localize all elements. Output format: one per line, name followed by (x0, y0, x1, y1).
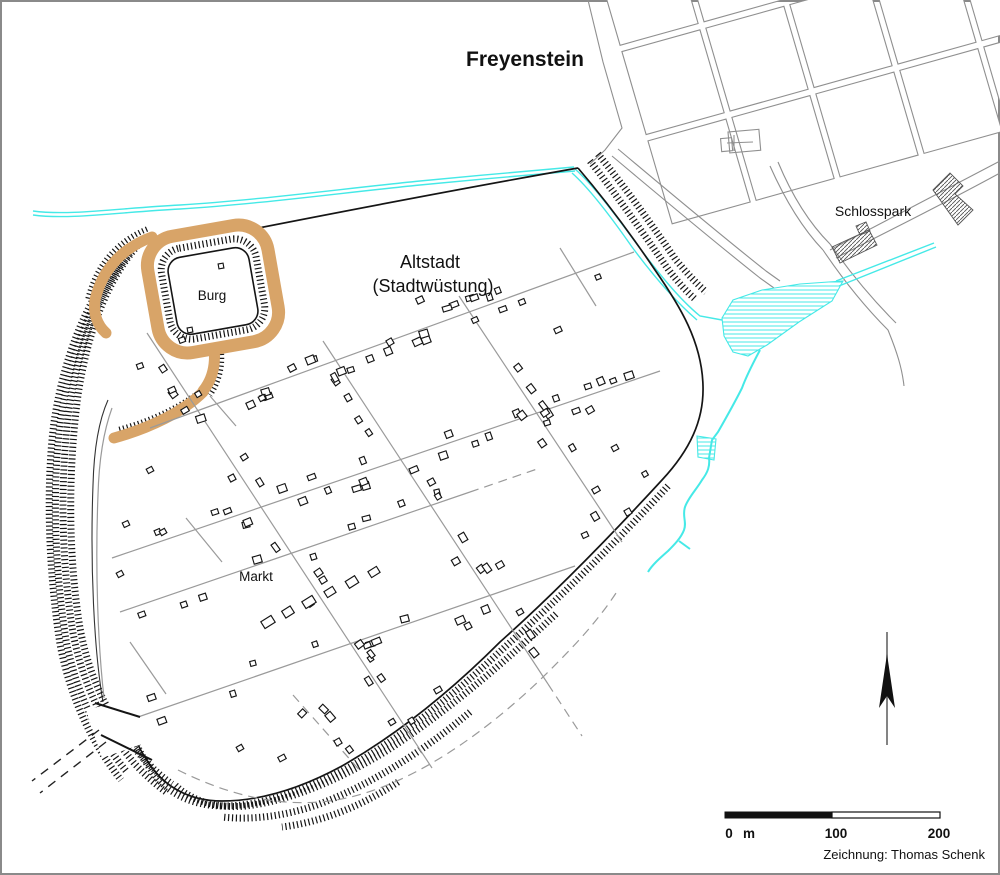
house-footprint (377, 674, 385, 683)
house-footprint (544, 420, 551, 426)
house-footprint (252, 555, 262, 564)
house-footprint (554, 326, 562, 333)
house-footprint (228, 474, 236, 482)
markt-label: Markt (239, 569, 273, 584)
streams-and-wetlands (33, 167, 936, 572)
house-footprint (310, 553, 317, 560)
house-footprint (345, 745, 353, 753)
house-footprint (371, 637, 381, 646)
scale-bar: 0 m 100 200 (725, 812, 950, 841)
street-line (459, 296, 622, 542)
house-footprint (324, 586, 336, 597)
house-footprint (592, 486, 601, 494)
house-footprint (277, 484, 288, 494)
street-line (323, 341, 548, 684)
house-footprint (146, 466, 154, 473)
house-footprint (481, 605, 490, 615)
house-footprint (288, 364, 297, 373)
burg-label: Burg (198, 288, 227, 303)
street-line (147, 333, 432, 768)
scale-label-unit: m (743, 826, 755, 841)
house-footprint (569, 444, 577, 452)
house-footprint (368, 566, 380, 577)
house-footprint (302, 595, 316, 608)
house-footprint (427, 478, 436, 486)
scale-label-100: 100 (825, 826, 848, 841)
town-block (732, 96, 834, 201)
scale-label-zero: 0 (725, 826, 733, 841)
street-line (186, 518, 222, 562)
house-footprint (298, 709, 307, 718)
house-footprint (581, 531, 589, 538)
house-footprint (261, 615, 275, 628)
house-footprint (243, 518, 253, 527)
house-footprint (494, 287, 501, 294)
courtyard-building (218, 263, 224, 269)
house-footprint (122, 520, 130, 527)
house-footprint (442, 305, 452, 312)
house-footprint (464, 622, 472, 630)
town-block (900, 49, 1000, 154)
house-footprint (472, 440, 479, 447)
house-footprint (250, 660, 257, 666)
street-line (130, 642, 166, 694)
house-footprint (400, 615, 409, 623)
house-footprint (307, 473, 316, 480)
map-title: Freyenstein (466, 48, 584, 71)
house-footprint (359, 456, 366, 464)
house-footprint (319, 576, 327, 584)
house-footprint (344, 393, 352, 401)
house-footprint (354, 640, 364, 650)
house-footprint (347, 367, 355, 374)
house-footprint (364, 676, 373, 686)
schloss-building (933, 173, 973, 225)
house-footprint (348, 523, 356, 530)
modern-town-blocks (588, 0, 1000, 386)
house-footprint (610, 377, 617, 384)
house-footprint (458, 532, 468, 543)
house-footprint (157, 716, 167, 725)
castle-earthwork (94, 237, 152, 333)
house-footprint (590, 511, 599, 521)
house-footprint (471, 316, 479, 323)
scale-label-200: 200 (928, 826, 951, 841)
house-footprint (298, 496, 308, 505)
stream (33, 167, 574, 213)
house-footprint (230, 690, 237, 697)
house-footprint (246, 400, 256, 409)
house-footprint (236, 744, 244, 751)
house-footprint (495, 561, 504, 570)
house-footprint (159, 364, 168, 373)
north-arrow-icon (879, 632, 895, 745)
house-footprint (516, 608, 524, 615)
house-footprint (314, 568, 323, 577)
house-footprint (384, 346, 393, 355)
house-footprint (366, 355, 374, 363)
schlosspark-label: Schlosspark (835, 203, 912, 219)
credit-label: Zeichnung: Thomas Schenk (823, 847, 985, 862)
house-footprint (584, 383, 592, 390)
house-footprint (325, 711, 336, 722)
house-footprint (514, 363, 523, 372)
house-footprint (642, 471, 649, 478)
stream (679, 541, 690, 549)
street-line (210, 396, 236, 426)
street-line (120, 492, 470, 612)
street-line (97, 408, 112, 698)
site-plan-svg: Freyenstein Altstadt (Stadtwüstung) Burg… (0, 0, 1000, 875)
house-footprint (116, 570, 124, 577)
house-footprint (147, 694, 156, 702)
house-footprint (278, 754, 287, 762)
house-footprint (498, 306, 507, 313)
house-footprint (352, 485, 362, 493)
house-footprint (409, 466, 419, 474)
house-footprint (538, 439, 547, 448)
street-line (112, 566, 575, 726)
house-footprint (624, 371, 634, 380)
town-block (648, 119, 750, 224)
house-footprint (455, 615, 466, 625)
scale-bar-filled-segment (725, 812, 832, 818)
house-footprint (136, 363, 143, 370)
house-footprint (138, 611, 146, 618)
altstadt-label-line1: Altstadt (400, 252, 460, 272)
house-footprint (596, 377, 605, 386)
house-footprint (595, 274, 602, 280)
house-footprint (518, 299, 525, 306)
house-footprint (240, 453, 248, 461)
house-footprint (211, 509, 219, 516)
house-footprint (398, 500, 406, 508)
street-line-dashed (470, 468, 540, 492)
house-footprint (271, 542, 280, 552)
town-wall-line (243, 168, 578, 231)
house-footprint (305, 355, 316, 365)
town-block (790, 0, 892, 88)
house-footprint (611, 444, 619, 451)
house-footprint (256, 478, 264, 487)
scale-bar-open-segment (832, 812, 940, 818)
courtyard-building (187, 327, 193, 333)
house-footprint (434, 686, 443, 694)
wetland-area (722, 281, 843, 356)
house-footprint (362, 515, 371, 521)
map-canvas: Freyenstein Altstadt (Stadtwüstung) Burg… (0, 0, 1000, 875)
house-footprint (345, 576, 359, 589)
house-footprint (624, 508, 632, 516)
house-footprint (585, 406, 594, 415)
house-footprint (355, 416, 363, 424)
house-footprint (324, 486, 331, 494)
house-footprint (319, 704, 329, 714)
house-footprint (178, 337, 185, 344)
house-footprint (365, 429, 373, 437)
house-footprint (282, 606, 295, 618)
street-line-dashed (548, 684, 582, 736)
schloss-building (832, 230, 877, 263)
house-footprint (438, 451, 448, 460)
town-block (622, 30, 724, 135)
altstadt-label-line2: (Stadtwüstung) (372, 276, 493, 296)
town-block (706, 6, 808, 111)
house-footprint (416, 296, 425, 304)
house-footprint (451, 557, 460, 566)
house-footprint (199, 593, 208, 601)
house-footprint (388, 718, 396, 725)
house-footprint (526, 384, 536, 394)
house-footprint (312, 641, 319, 648)
house-footprint (485, 432, 493, 441)
house-footprint (552, 395, 559, 402)
house-footprint (180, 601, 187, 608)
town-block (816, 72, 918, 177)
house-footprint (334, 738, 342, 746)
house-footprint (444, 430, 453, 439)
house-footprint (223, 507, 232, 514)
house-footprint (572, 407, 581, 414)
stream (648, 350, 760, 572)
